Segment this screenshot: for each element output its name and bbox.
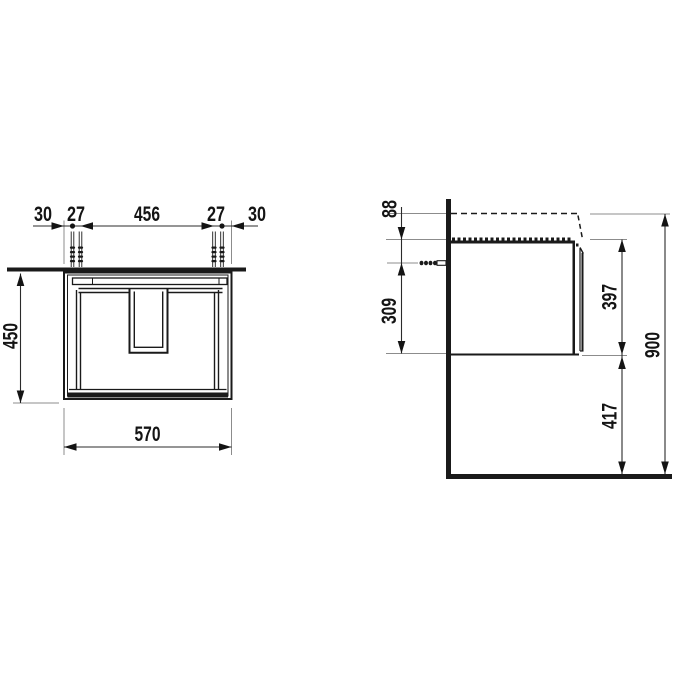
wall-line — [446, 199, 451, 479]
mounting-screw-side — [420, 261, 447, 266]
dim-label-screw-pair-left: 27 — [67, 203, 85, 226]
arrow-down-icon — [17, 391, 25, 404]
floor-line — [446, 474, 672, 479]
arrow-up-icon — [17, 274, 25, 287]
mounting-screws-front — [70, 232, 225, 268]
side-total-height-dimension: 900 — [590, 214, 670, 474]
dim-label-417: 417 — [599, 403, 622, 429]
dim-label-900: 900 — [642, 332, 665, 358]
side-right-dimensions: 397 417 — [582, 240, 627, 475]
dim-label-397: 397 — [599, 284, 622, 310]
arrow-up-icon — [661, 214, 669, 227]
side-view: 88 309 397 417 900 — [378, 199, 672, 479]
dim-label-88: 88 — [379, 200, 402, 218]
arrow-down-icon — [661, 462, 669, 475]
dim-label-screw-pair-right: 27 — [207, 203, 225, 226]
arrow-right-icon — [52, 222, 65, 229]
dim-label-width: 570 — [135, 423, 161, 446]
arrow-down-icon — [618, 462, 626, 475]
cabinet-side — [451, 241, 584, 356]
countertop — [7, 268, 246, 272]
dim-label-309: 309 — [378, 298, 401, 324]
dim-label-height: 450 — [0, 323, 23, 349]
arrow-down-icon — [398, 227, 406, 240]
screw-icon — [219, 232, 224, 268]
front-view: 30 27 456 27 30 — [0, 203, 266, 455]
screw-icon — [78, 232, 83, 268]
door-front — [576, 244, 584, 352]
arrow-up-icon — [398, 263, 406, 276]
cabinet-front — [64, 273, 232, 400]
dim-label-edge-right: 30 — [248, 203, 266, 226]
arrow-down-icon — [618, 342, 626, 355]
arrow-down-icon — [398, 341, 406, 354]
top-rail — [73, 278, 228, 285]
side-left-dimensions: 88 309 — [378, 200, 446, 354]
dim-label-edge-left: 30 — [34, 203, 52, 226]
arrow-right-icon — [219, 443, 232, 451]
arrow-up-icon — [618, 240, 626, 253]
washbasin-dashed-outline — [451, 214, 583, 240]
screw-icon — [211, 232, 216, 268]
arrow-left-icon — [64, 443, 77, 451]
front-top-dimension: 30 27 456 27 30 — [33, 203, 266, 264]
arrow-up-icon — [618, 357, 626, 370]
arrow-left-icon — [232, 222, 245, 229]
bottom-panel — [68, 393, 229, 398]
front-width-dimension: 570 — [64, 408, 232, 455]
screw-icon — [70, 232, 75, 268]
dim-label-screw-span: 456 — [134, 203, 160, 226]
siphon-cutout — [130, 289, 168, 353]
front-height-dimension: 450 — [0, 274, 59, 404]
vanity-dimension-drawing: 30 27 456 27 30 — [0, 0, 680, 680]
seal-strip-dotted — [452, 238, 571, 242]
technical-drawing-page: 30 27 456 27 30 — [0, 0, 680, 680]
